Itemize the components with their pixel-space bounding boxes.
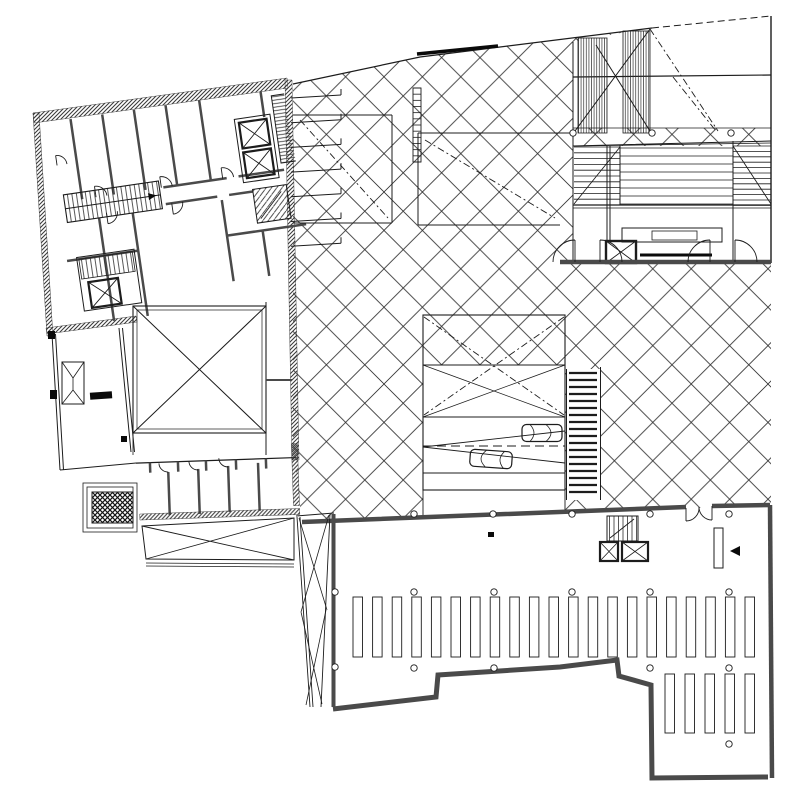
skylight-slot xyxy=(510,597,520,657)
column xyxy=(726,589,732,595)
skylight-slot xyxy=(529,597,539,657)
skylight-slot xyxy=(431,597,441,657)
skylight-slot xyxy=(705,674,715,733)
skylight-slot xyxy=(353,597,363,657)
ramp-band-west xyxy=(578,38,607,133)
column xyxy=(649,130,655,136)
floor-plan-sheet xyxy=(0,0,799,799)
paving-block xyxy=(92,492,133,523)
shaft-slot xyxy=(714,528,723,568)
paving-panel xyxy=(83,483,137,532)
column xyxy=(411,589,417,595)
post-marker xyxy=(121,436,127,442)
column xyxy=(728,130,734,136)
wing-partitions xyxy=(150,459,268,516)
floor-plan-drawing xyxy=(0,0,799,799)
skylight-slot xyxy=(647,597,657,657)
skylight-slot xyxy=(490,597,500,657)
stair-southeast xyxy=(253,185,292,224)
post-marker xyxy=(50,390,57,399)
column xyxy=(569,589,575,595)
elevator-core-southwest xyxy=(77,249,142,311)
column xyxy=(491,665,497,671)
column xyxy=(726,665,732,671)
skylight-slot xyxy=(608,597,618,657)
skylight-slots-row1 xyxy=(353,597,755,657)
west-wall xyxy=(33,113,53,336)
skylight-slot xyxy=(686,597,696,657)
elevator-core xyxy=(234,114,279,183)
column xyxy=(411,511,417,517)
north-wall xyxy=(33,78,288,123)
hall-south-wall xyxy=(333,660,768,778)
column xyxy=(647,511,653,517)
column xyxy=(726,741,732,747)
south-wall xyxy=(46,316,137,334)
skylight-slot xyxy=(373,597,383,657)
side-ramp-braced xyxy=(296,513,334,707)
hall-stair-core xyxy=(600,516,648,561)
bench xyxy=(90,391,112,400)
post-marker xyxy=(48,331,55,339)
column xyxy=(647,589,653,595)
skylight-slot xyxy=(588,597,598,657)
canopy-braced xyxy=(142,518,294,567)
skylight-slot xyxy=(412,597,422,657)
skylight-slot xyxy=(627,597,637,657)
skylight-slots-row2 xyxy=(665,674,755,733)
column xyxy=(726,511,732,517)
column xyxy=(570,130,576,136)
skylight-slot xyxy=(451,597,461,657)
column xyxy=(569,511,575,517)
ramp-band-east xyxy=(623,31,650,133)
skylight-slot xyxy=(706,597,716,657)
column xyxy=(491,589,497,595)
skylight-slot xyxy=(665,674,675,733)
crossing-floor xyxy=(566,369,601,500)
column xyxy=(490,511,496,517)
skylight-slot xyxy=(667,597,677,657)
section-marker-arrow xyxy=(730,546,740,556)
skylight-slot xyxy=(549,597,559,657)
skylight-hip xyxy=(62,362,84,404)
column xyxy=(411,665,417,671)
skylight-slot xyxy=(392,597,402,657)
skylight-slot xyxy=(745,674,755,733)
skylight-slot xyxy=(725,674,735,733)
equipment-marker xyxy=(488,532,494,537)
stair-main xyxy=(63,181,162,223)
skylight-slot xyxy=(569,597,579,657)
column xyxy=(332,589,338,595)
wing-south-wall xyxy=(140,508,300,520)
column xyxy=(332,664,338,670)
hall-east-wall xyxy=(770,505,772,778)
void-opening xyxy=(133,306,266,455)
building-interior xyxy=(47,88,316,327)
skylight-slot xyxy=(725,597,735,657)
skylight-slot xyxy=(745,597,755,657)
skylight-slot xyxy=(685,674,695,733)
terrace xyxy=(48,328,136,470)
skylight-slot xyxy=(471,597,481,657)
column xyxy=(647,665,653,671)
